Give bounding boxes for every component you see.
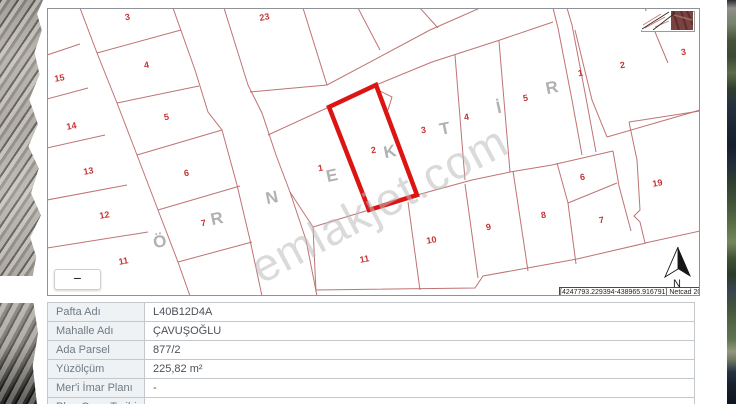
table-row: Mahalle AdıÇAVUŞOĞLU <box>48 322 695 341</box>
field-label: Mer'i İmar Planı <box>48 379 145 398</box>
north-arrow-icon <box>665 247 691 277</box>
field-value: L40B12D4A <box>145 303 695 322</box>
details-table: Pafta AdıL40B12D4AMahalle AdıÇAVUŞOĞLUAd… <box>47 302 695 404</box>
parcel-number: 8 <box>540 210 547 221</box>
next-photo-strip[interactable] <box>727 0 736 404</box>
parcel-number: 10 <box>426 234 438 246</box>
highlighted-parcel-number: 2 <box>370 145 377 156</box>
field-label: Plan Onay Tarihi <box>48 398 145 404</box>
parcel-number: 7 <box>200 218 207 229</box>
field-label: Ada Parsel <box>48 341 145 360</box>
table-row: Pafta AdıL40B12D4A <box>48 303 695 322</box>
parcel-number: 11 <box>359 253 370 265</box>
listing-page: 3231541451361271113451110986712319ÖRNEKT… <box>0 0 736 404</box>
parcel-number: 12 <box>99 209 111 221</box>
field-value: - <box>145 379 695 398</box>
parcel-number: 5 <box>163 112 170 123</box>
parcel-number: 4 <box>143 60 150 71</box>
parcel-number: 3 <box>124 12 131 23</box>
parcel-number: 5 <box>522 93 529 104</box>
map-credit: [4247793.229394-438965.916791] Netcad 20… <box>559 287 700 296</box>
sample-letter: E <box>324 165 339 186</box>
parcel-map[interactable]: 3231541451361271113451110986712319ÖRNEKT… <box>47 8 700 296</box>
table-row: Yüzölçüm225,82 m² <box>48 360 695 379</box>
parcel-number: 1 <box>317 163 324 174</box>
sample-letter: T <box>438 118 453 139</box>
parcel-number: 13 <box>83 165 95 177</box>
field-label: Mahalle Adı <box>48 322 145 341</box>
overview-thumbnail[interactable] <box>641 11 695 32</box>
parcel-number: 19 <box>652 177 664 189</box>
sample-letter: İ <box>495 98 504 118</box>
previous-photo-strip[interactable] <box>0 0 43 276</box>
parcel-number: 4 <box>463 112 470 123</box>
sample-letter: N <box>264 187 280 208</box>
field-label: Yüzölçüm <box>48 360 145 379</box>
field-value: 877/2 <box>145 341 695 360</box>
sample-letter: R <box>209 208 225 229</box>
field-value: - <box>145 398 695 404</box>
zoom-out-button[interactable]: − <box>54 269 101 290</box>
parcel-number: 6 <box>183 168 190 179</box>
sample-letter: R <box>544 77 560 98</box>
parcel-number: 7 <box>598 215 605 226</box>
details-table-body: Pafta AdıL40B12D4AMahalle AdıÇAVUŞOĞLUAd… <box>48 303 695 404</box>
map-canvas: 3231541451361271113451110986712319ÖRNEKT… <box>47 8 700 296</box>
field-value: ÇAVUŞOĞLU <box>145 322 695 341</box>
parcel-number: 9 <box>485 222 492 233</box>
parcel-number: 15 <box>54 72 66 84</box>
parcel-number: 6 <box>579 172 586 183</box>
parcel-number: 2 <box>619 60 626 71</box>
sample-letter: Ö <box>151 231 168 252</box>
parcel-number: 1 <box>577 68 584 79</box>
table-row: Plan Onay Tarihi- <box>48 398 695 404</box>
parcel-number: 3 <box>680 47 687 58</box>
field-value: 225,82 m² <box>145 360 695 379</box>
parcel-number: 11 <box>118 255 129 267</box>
parcel-number: 14 <box>66 120 78 132</box>
field-label: Pafta Adı <box>48 303 145 322</box>
parcel-number: 23 <box>259 11 271 23</box>
overview-thumbnail-image <box>641 11 693 30</box>
previous-photo-strip-lower[interactable] <box>0 303 38 404</box>
table-row: Mer'i İmar Planı- <box>48 379 695 398</box>
parcel-number: 3 <box>420 125 427 136</box>
table-row: Ada Parsel877/2 <box>48 341 695 360</box>
